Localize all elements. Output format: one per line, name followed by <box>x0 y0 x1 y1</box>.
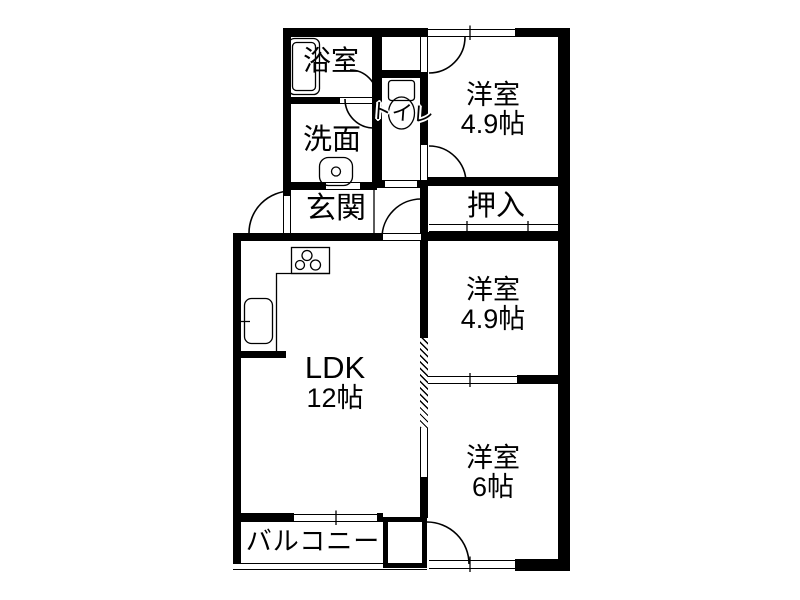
toilet-icon-tank <box>389 81 415 101</box>
stove-icon <box>292 248 330 274</box>
wall-room1-closet-divider <box>428 177 558 186</box>
room-size: 4.9帖 <box>433 305 553 334</box>
wall-right-outer <box>558 28 570 570</box>
opening-ldk-room3 <box>420 428 428 477</box>
opening-entrance-door <box>283 196 291 233</box>
room-label-balcony: バルコニー <box>238 527 388 555</box>
wall-left-upper <box>283 28 291 196</box>
stove-burner <box>296 261 305 270</box>
stove-burner <box>311 260 321 270</box>
room-size: 12帖 <box>270 384 400 413</box>
opening-ldk-hall-door <box>383 233 421 241</box>
kitchen-sink-icon <box>245 299 273 344</box>
room-label-western-room-3: 洋室 6帖 <box>433 444 553 502</box>
wall-ldk-top <box>233 233 383 241</box>
opening-toilet-door <box>385 180 417 188</box>
wall-top-left <box>283 28 428 37</box>
room-label-washroom: 洗面 <box>293 125 371 156</box>
wall-ldk-divider-bottom <box>420 477 428 518</box>
room-name: LDK <box>270 351 400 384</box>
kitchen-counter-line <box>277 274 331 352</box>
room-label-closet: 押入 <box>448 191 544 222</box>
wall-room3-bottom-right <box>515 559 570 571</box>
room-label-bathroom: 浴室 <box>293 46 369 76</box>
door-leaf-room1-closet <box>420 37 428 72</box>
wall-room2-room3-right <box>517 375 558 384</box>
plan-symbols <box>0 0 800 600</box>
sliding-door-closet <box>429 224 558 232</box>
opening-wash-entrance <box>326 182 360 190</box>
window-ldk-balcony <box>294 514 377 522</box>
room-size: 6帖 <box>433 473 553 502</box>
room-label-ldk: LDK 12帖 <box>270 351 400 414</box>
opening-bath-door <box>340 97 372 104</box>
room-name: 洋室 <box>433 444 553 473</box>
window-room3-bottom <box>429 560 515 569</box>
window-room1-top <box>428 29 515 37</box>
room-size: 4.9帖 <box>433 110 553 139</box>
balcony-pillar <box>383 517 427 568</box>
wall-wash-entrance-left <box>283 182 326 190</box>
accordion-partition <box>420 338 428 428</box>
room-label-western-room-1: 洋室 4.9帖 <box>433 81 553 139</box>
sliding-door-room2-room3 <box>428 376 517 384</box>
wall-closet-room2-divider <box>427 232 558 241</box>
door-arc-room3 <box>427 522 469 564</box>
wall-bath-bottom-left <box>283 97 340 104</box>
door-leaf-room1 <box>420 145 428 180</box>
washbasin-drain <box>332 167 341 176</box>
floor-plan: 浴室 洗面 トイレ 玄関 洋室 4.9帖 押入 洋室 4.9帖 洋室 6帖 LD… <box>0 0 800 600</box>
wall-ldk-divider-top <box>420 241 428 338</box>
room-label-entrance: 玄関 <box>298 193 374 225</box>
room-label-western-room-2: 洋室 4.9帖 <box>433 276 553 334</box>
wall-wash-entrance-right <box>360 182 377 190</box>
room-name: 洋室 <box>433 81 553 110</box>
door-arc-room1-closet <box>429 37 465 73</box>
stove-burner <box>302 251 312 261</box>
wall-ldk-bottom-left <box>233 513 294 522</box>
room-name: 洋室 <box>433 276 553 305</box>
room-label-toilet: トイレ <box>369 101 434 128</box>
